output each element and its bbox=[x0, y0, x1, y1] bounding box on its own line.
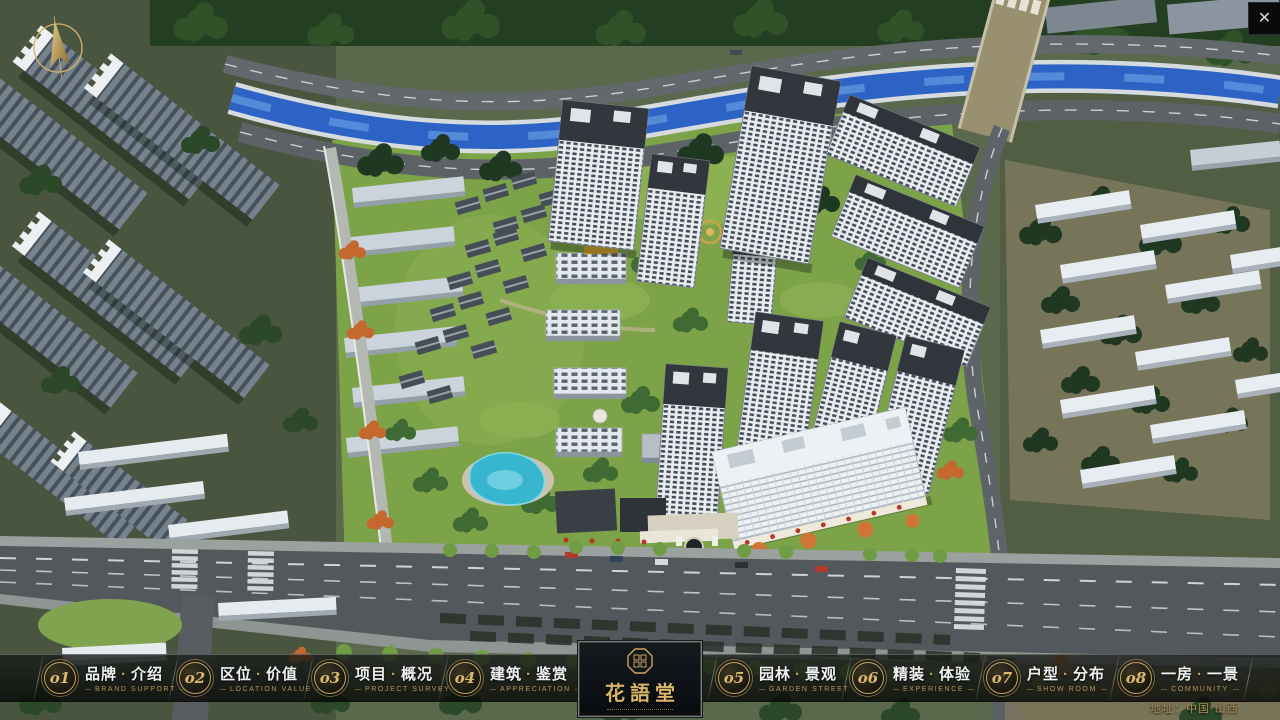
nav-number-6: o6 bbox=[852, 662, 884, 694]
nav-label-en: BRAND SUPPORT bbox=[85, 686, 178, 693]
nav-number-5: o5 bbox=[718, 662, 750, 694]
nav-item-brand[interactable]: o1 品牌·介绍 BRAND SUPPORT bbox=[44, 655, 178, 701]
nav-label-en: GARDEN STREET bbox=[759, 686, 852, 693]
nav-label-en: SHOW ROOM bbox=[1027, 686, 1107, 693]
masterplan-app: ✕ o1 品牌·介绍 BRAND SUPPORT o2 区位·价值 LOCATI… bbox=[0, 0, 1280, 720]
nav-item-architecture[interactable]: o4 建筑·鉴赏 APPRECIATION bbox=[449, 655, 583, 701]
nav-label-zh: 园林·景观 bbox=[759, 663, 852, 684]
nav-label-en: PROJECT SURVEY bbox=[355, 686, 448, 693]
nav-label-zh: 区位·价值 bbox=[220, 663, 313, 684]
nav-label-en: APPRECIATION bbox=[490, 686, 581, 693]
nav-label-en: EXPERIENCE bbox=[893, 686, 974, 693]
compass-icon bbox=[26, 10, 90, 82]
nav-number-2: o2 bbox=[179, 662, 211, 694]
nav-number-4: o4 bbox=[449, 662, 481, 694]
nav-number-7: o7 bbox=[986, 662, 1018, 694]
nav-label-zh: 精装·体验 bbox=[893, 663, 974, 684]
nav-number-1: o1 bbox=[44, 662, 76, 694]
nav-label-zh: 一房·一景 bbox=[1161, 663, 1239, 684]
nav-label-en: COMMUNITY bbox=[1161, 686, 1239, 693]
nav-item-project[interactable]: o3 项目·概况 PROJECT SURVEY bbox=[314, 655, 448, 701]
brand-rule bbox=[607, 709, 673, 710]
nav-item-location[interactable]: o2 区位·价值 LOCATION VALUE bbox=[179, 655, 313, 701]
nav-item-floorplans[interactable]: o7 户型·分布 SHOW ROOM bbox=[986, 655, 1120, 701]
nav-item-interior[interactable]: o6 精装·体验 EXPERIENCE bbox=[852, 655, 986, 701]
brand-logo-panel[interactable]: 花語堂 bbox=[578, 641, 702, 717]
nav-label-en: LOCATION VALUE bbox=[220, 686, 313, 693]
brand-seal-icon bbox=[627, 648, 653, 674]
nav-label-zh: 品牌·介绍 bbox=[85, 663, 178, 684]
nav-number-3: o3 bbox=[314, 662, 346, 694]
nav-label-zh: 项目·概况 bbox=[355, 663, 448, 684]
masterplan-render[interactable] bbox=[0, 0, 1280, 720]
address-text: 地址：中国·山西 bbox=[1150, 700, 1239, 716]
nav-number-8: o8 bbox=[1120, 662, 1152, 694]
nav-item-views[interactable]: o8 一房·一景 COMMUNITY bbox=[1120, 655, 1254, 701]
nav-label-zh: 户型·分布 bbox=[1027, 663, 1107, 684]
nav-label-zh: 建筑·鉴赏 bbox=[490, 663, 581, 684]
close-button[interactable]: ✕ bbox=[1248, 2, 1280, 35]
nav-item-garden[interactable]: o5 园林·景观 GARDEN STREET bbox=[718, 655, 852, 701]
brand-title: 花語堂 bbox=[600, 677, 680, 706]
